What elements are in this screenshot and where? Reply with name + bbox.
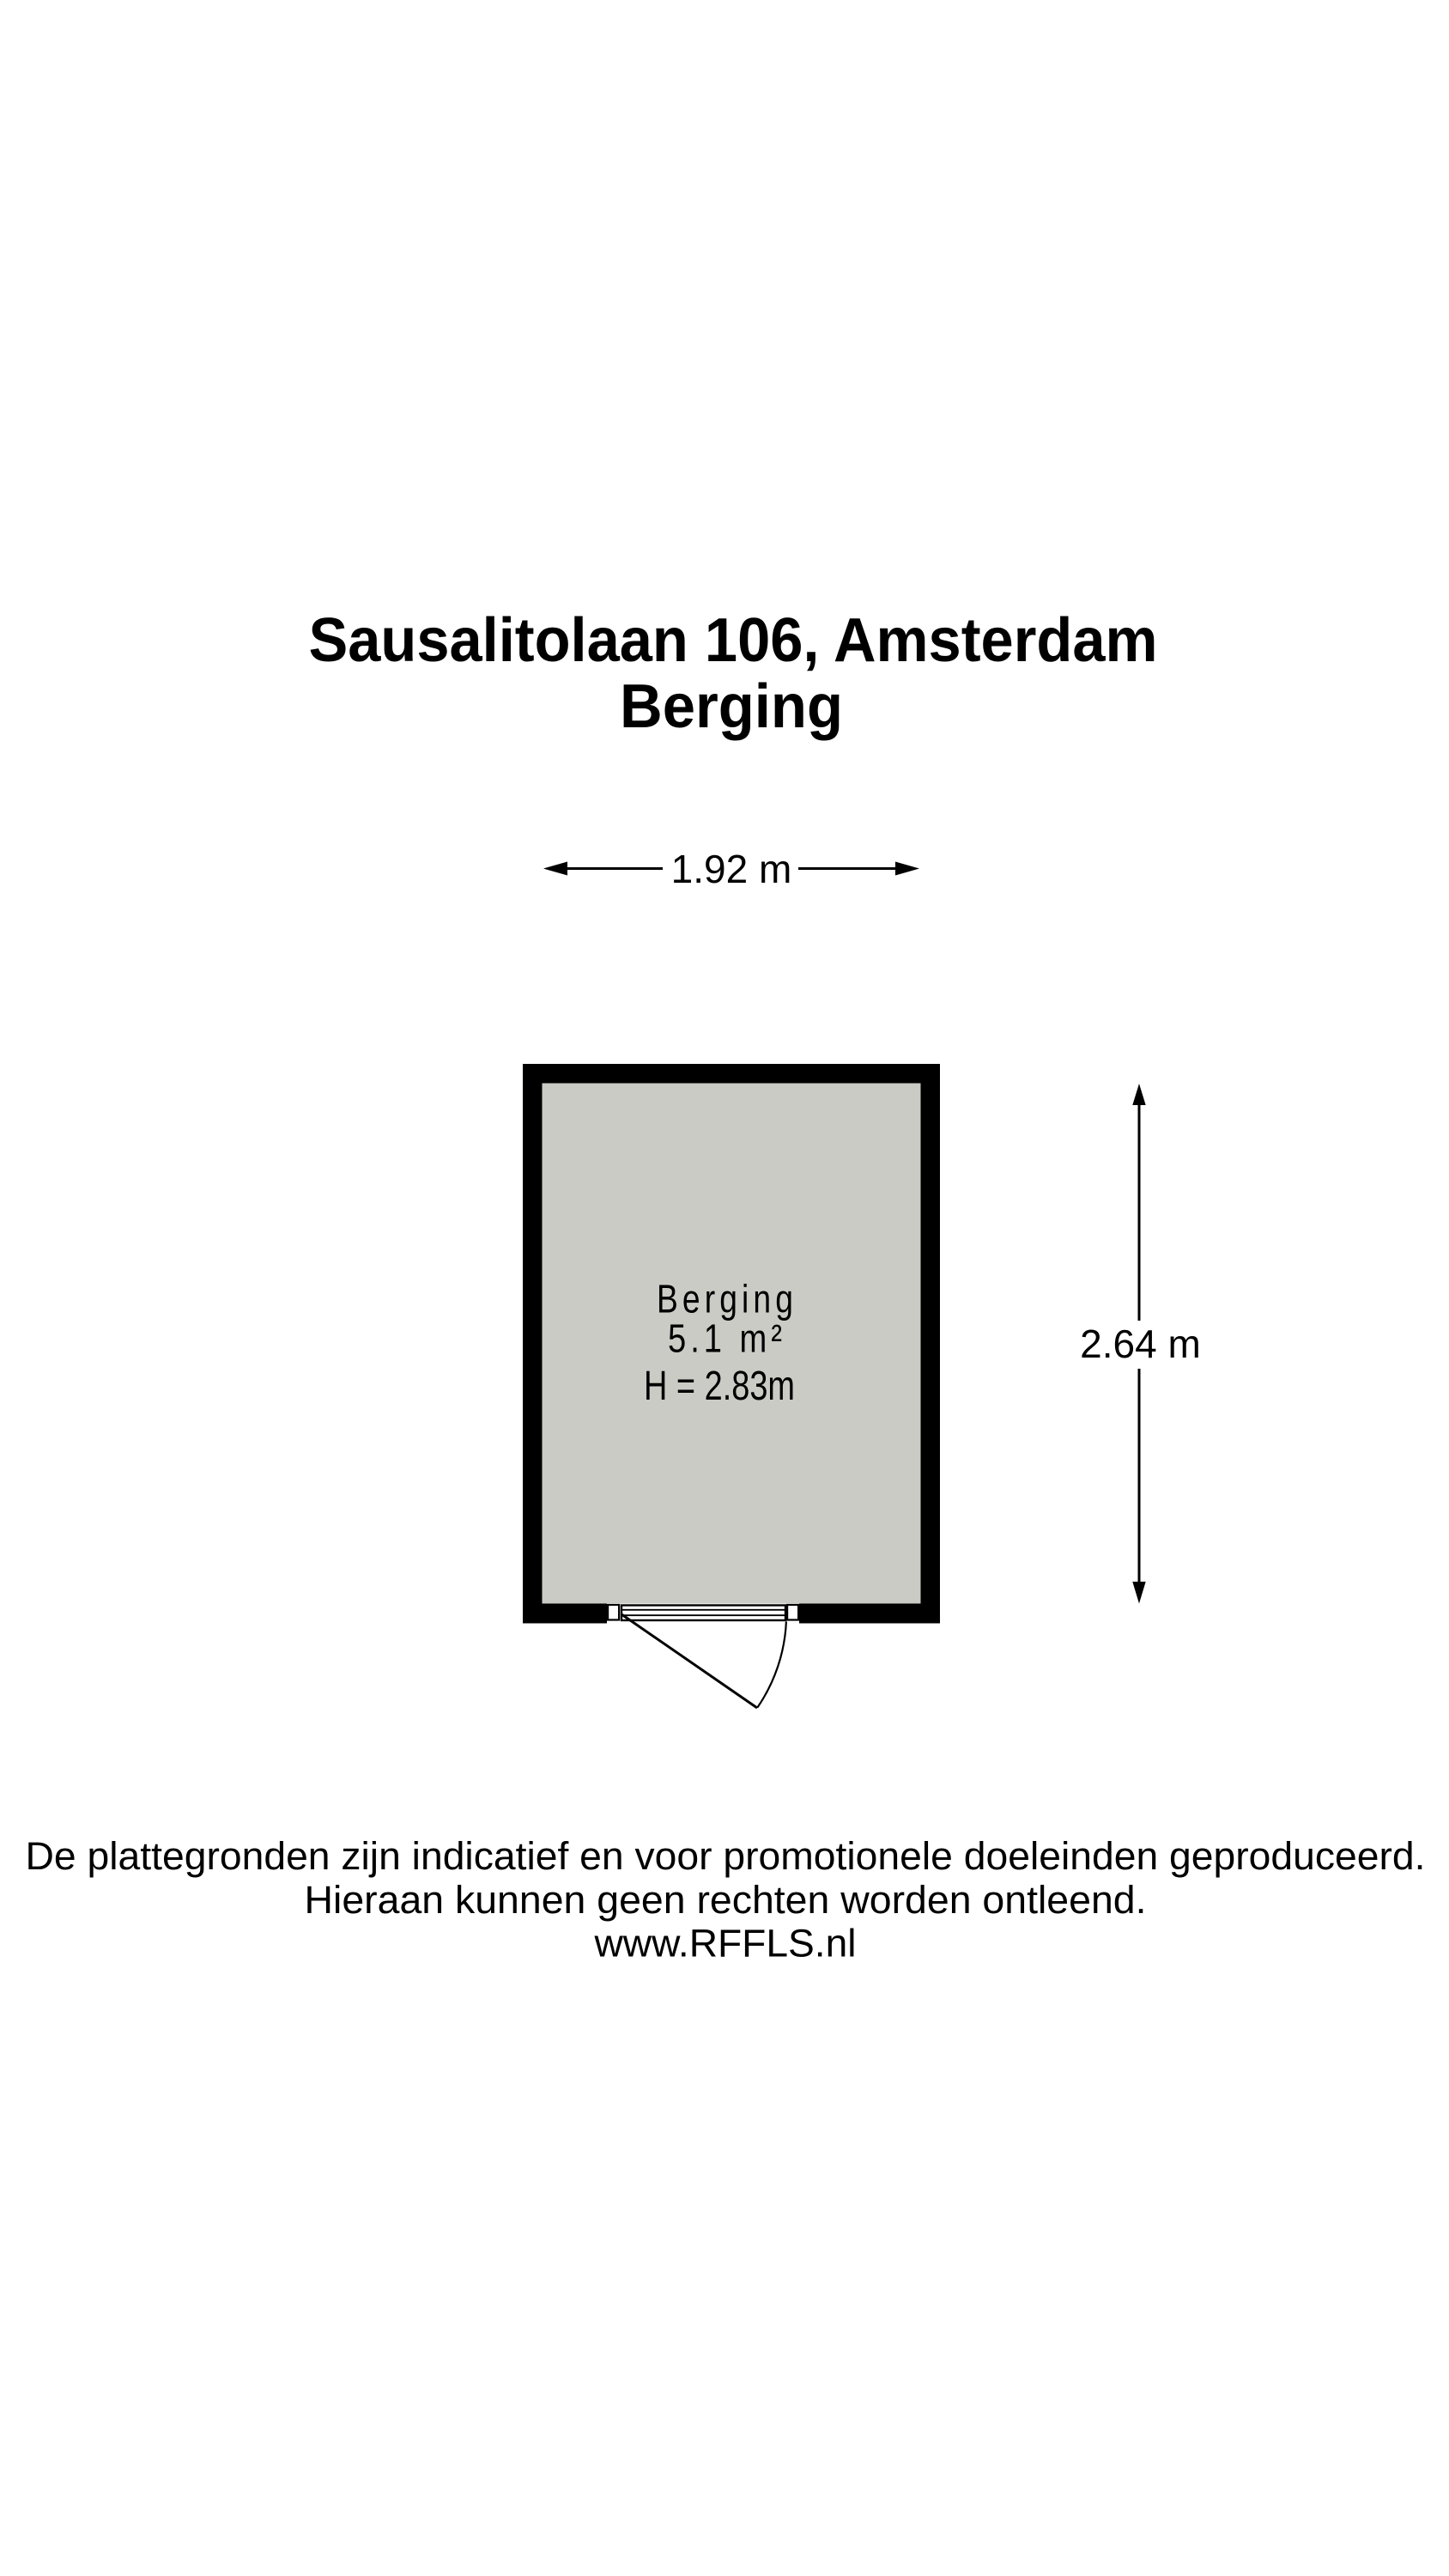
svg-text:Berging: Berging [657, 1277, 797, 1321]
svg-text:Hieraan kunnen geen rechten wo: Hieraan kunnen geen rechten worden ontle… [305, 1878, 1147, 1922]
svg-text:2.64 m: 2.64 m [1080, 1321, 1201, 1366]
svg-text:Berging: Berging [620, 672, 843, 741]
svg-text:H = 2.83m: H = 2.83m [644, 1364, 795, 1409]
svg-text:1.92 m: 1.92 m [671, 847, 792, 891]
svg-text:Sausalitolaan 106, Amsterdam: Sausalitolaan 106, Amsterdam [309, 606, 1158, 675]
svg-text:De plattegronden zijn indicati: De plattegronden zijn indicatief en voor… [26, 1834, 1426, 1878]
svg-text:5.1 m²: 5.1 m² [668, 1316, 786, 1361]
svg-text:www.RFFLS.nl: www.RFFLS.nl [593, 1922, 856, 1965]
